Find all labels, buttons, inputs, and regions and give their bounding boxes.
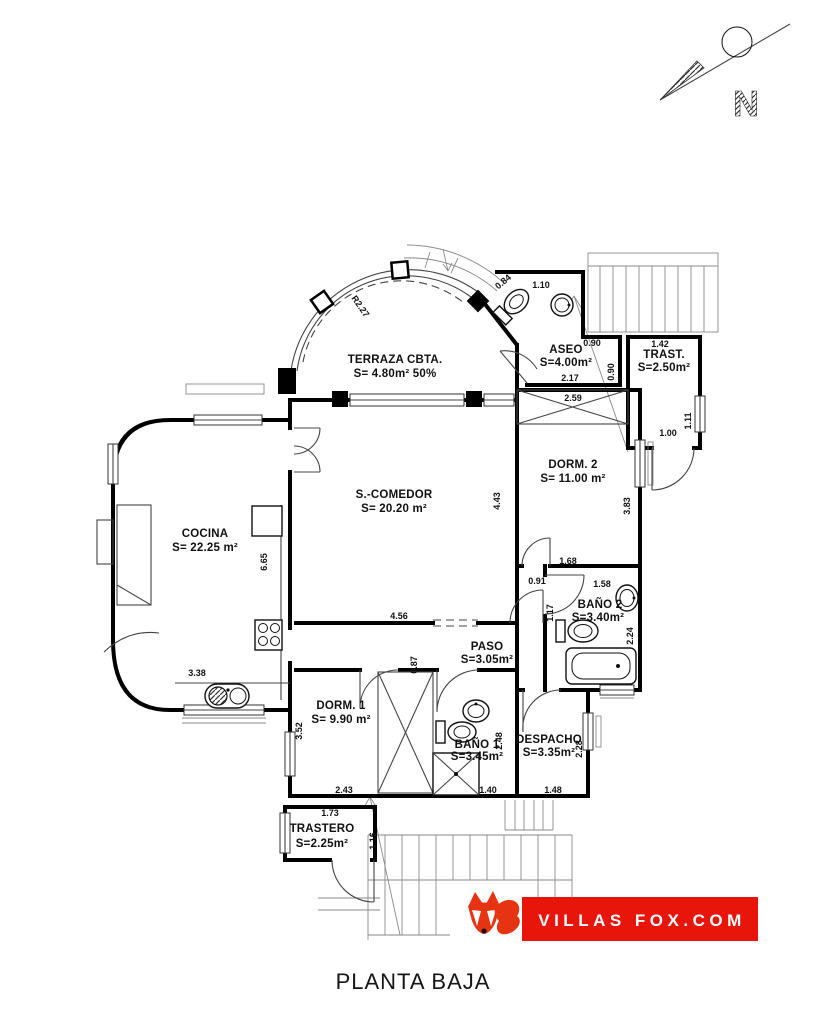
dim-label: 2.43 <box>335 785 353 795</box>
terrace-column <box>311 291 333 313</box>
dim-label: 4.43 <box>492 492 502 510</box>
room-label-paso: PASO <box>471 641 504 653</box>
north-arrow-icon <box>660 24 790 100</box>
basin-icon <box>463 700 489 722</box>
room-label-bano1: BAÑO 1 <box>455 738 500 751</box>
room-area-trast: S=2.50m² <box>638 362 690 374</box>
room-label-despacho: DESPACHO <box>516 734 582 746</box>
room-area-trastero: S=2.25m² <box>296 838 348 850</box>
dim-label: 3.38 <box>188 668 206 678</box>
dim-label: 6.65 <box>259 553 269 571</box>
room-label-trastero: TRASTERO <box>290 823 355 835</box>
dim-label: 1.42 <box>651 339 669 349</box>
room-label-cocina: COCINA <box>182 528 229 540</box>
aseo-fixtures <box>492 285 573 326</box>
north-letter-icon: N <box>733 83 759 124</box>
bathtub-icon <box>566 648 636 684</box>
dim-label: 1.73 <box>321 808 339 818</box>
dim-label: 0.91 <box>528 576 546 586</box>
dim-label: 1.10 <box>532 280 550 290</box>
room-area-bano1: S=3.45m² <box>451 751 503 763</box>
room-label-trast: TRAST. <box>643 349 684 361</box>
sink-icon <box>175 683 290 708</box>
room-area-paso: S=3.05m² <box>461 654 513 666</box>
room-area-dorm2: S= 11.00 m² <box>540 473 605 485</box>
dim-label: 0.90 <box>583 338 601 348</box>
dim-label: 1.17 <box>545 604 555 622</box>
floor-plan-page: N <box>0 0 817 1024</box>
floor-plan-svg: N <box>0 0 817 1024</box>
doors <box>104 351 694 902</box>
wall-pillar <box>278 368 296 394</box>
dim-label: 1.68 <box>559 556 577 566</box>
logo-text: VILLAS FOX.COM <box>538 911 746 930</box>
dim-label: 2.48 <box>494 732 504 750</box>
page-title: PLANTA BAJA <box>336 969 491 994</box>
terrace-column <box>467 290 490 313</box>
room-area-dorm1: S= 9.90 m² <box>311 714 370 726</box>
room-label-dorm2: DORM. 2 <box>548 459 597 471</box>
dim-label: 3.83 <box>622 497 632 515</box>
terrace-column <box>391 261 408 278</box>
room-area-bano2: S=3.40m² <box>572 612 624 624</box>
dim-label: 0.84 <box>493 272 513 291</box>
dim-label: 0.90 <box>606 363 616 381</box>
radius-label: R2.27 <box>349 294 371 319</box>
room-area-comedor: S= 20.20 m² <box>361 503 427 515</box>
fridge-icon <box>252 506 282 536</box>
room-area-aseo: S=4.00m² <box>540 357 592 369</box>
chimney <box>97 520 113 564</box>
room-area-despacho: S=3.35m² <box>523 747 575 759</box>
kitchen-cabinet <box>117 505 151 605</box>
dim-label: 4.56 <box>390 611 408 621</box>
room-label-bano2: BAÑO 2 <box>578 598 623 611</box>
room-label-dorm1: DORM. 1 <box>316 700 366 712</box>
dim-label: 2.24 <box>625 627 635 645</box>
dim-label: 0.87 <box>409 656 419 674</box>
dim-label: 3.52 <box>294 722 304 740</box>
dim-label: 1.16 <box>368 832 378 850</box>
dim-label: 1.00 <box>659 428 677 438</box>
room-label-aseo: ASEO <box>549 344 582 356</box>
basin-icon <box>551 294 573 316</box>
dim-label: 1.40 <box>479 785 497 795</box>
brand-logo: VILLAS FOX.COM <box>462 891 758 944</box>
dim-label: 1.48 <box>544 785 562 795</box>
room-label-comedor: S.-COMEDOR <box>356 489 433 501</box>
dim-label: 1.58 <box>593 579 611 589</box>
room-label-terraza: TERRAZA CBTA. <box>348 354 443 366</box>
dim-label: 1.11 <box>683 412 693 429</box>
dim-label: 2.28 <box>574 740 584 758</box>
room-area-terraza: S= 4.80m² 50% <box>354 368 437 380</box>
room-area-cocina: S= 22.25 m² <box>172 542 238 554</box>
dim-label: 2.17 <box>561 373 579 383</box>
dim-label: 2.59 <box>564 393 582 403</box>
hob-icon <box>255 620 282 650</box>
